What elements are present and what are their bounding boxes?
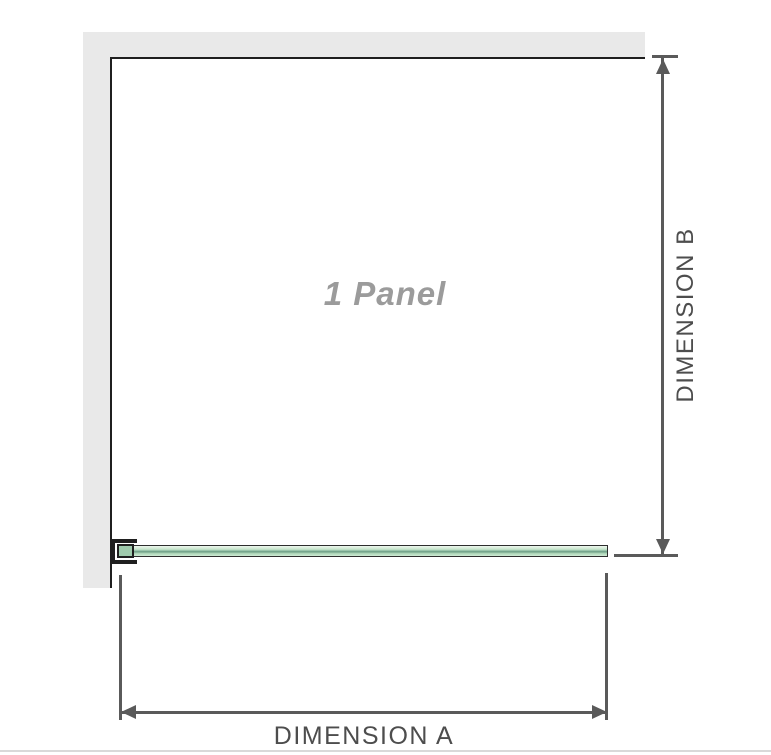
dimension-a-line: [122, 711, 606, 714]
glass-end-block: [117, 544, 134, 558]
wall-inner-edge-top: [110, 57, 645, 59]
dimension-a-extension-line-right: [605, 573, 608, 720]
dimension-b-arrow-down-icon: [656, 539, 670, 554]
dimension-b-top-cap: [652, 55, 678, 58]
dimension-b-line: [661, 58, 664, 554]
wall-bracket-bottom-arm: [110, 560, 137, 564]
dimension-a-arrow-left-icon: [121, 705, 136, 719]
dimension-b-bottom-cap: [614, 554, 678, 557]
glass-panel: [117, 545, 608, 557]
wall-left: [83, 32, 110, 588]
dimension-b-arrow-up-icon: [656, 59, 670, 74]
dimension-a-arrow-right-icon: [592, 705, 607, 719]
dimension-b-label: DIMENSION B: [671, 215, 701, 415]
page-bottom-divider: [0, 750, 771, 752]
wall-inner-edge-left: [110, 57, 112, 588]
panel-count-label: 1 Panel: [235, 275, 535, 313]
wall-top: [83, 32, 645, 57]
dimension-a-extension-line-left: [119, 575, 122, 720]
diagram-canvas: 1 Panel DIMENSION B DIMENSION A: [0, 0, 771, 755]
dimension-a-label: DIMENSION A: [164, 722, 564, 751]
